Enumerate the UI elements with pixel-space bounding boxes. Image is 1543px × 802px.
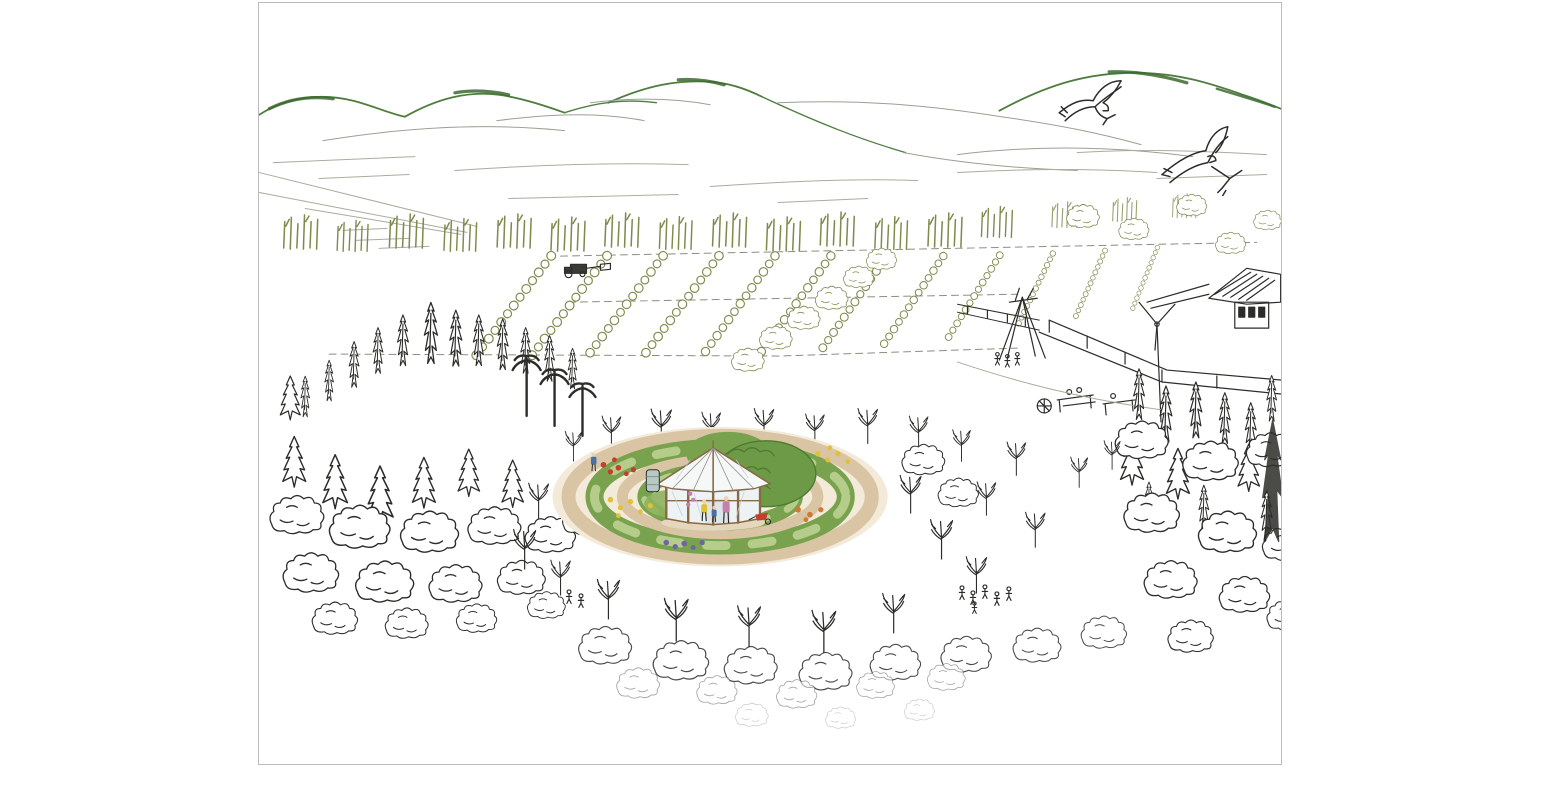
- landscape-sketch: [259, 3, 1281, 764]
- bottom-canopy: [579, 616, 1127, 690]
- drawing-frame: [258, 2, 1282, 765]
- page-background: [0, 0, 1543, 802]
- round-sculpture: [1037, 399, 1051, 413]
- bird-icon: [1162, 127, 1242, 196]
- woodland-right: [1115, 369, 1281, 652]
- poplar-windbreak: [284, 194, 1197, 252]
- field-scattered-trees: [264, 6, 1281, 371]
- mountain-ridge-shadows: [269, 72, 1274, 109]
- kite-birds: [1059, 81, 1242, 196]
- barn: [1147, 268, 1281, 328]
- farm-buildings: [958, 268, 1281, 422]
- tipi: [999, 288, 1045, 360]
- terrace-wall: [958, 304, 1281, 394]
- bird-icon: [1059, 81, 1121, 125]
- orchard-rows: [470, 245, 1160, 362]
- lake-and-plain-lines: [259, 150, 1266, 248]
- circular-garden: [553, 427, 888, 567]
- sketch-root: [259, 6, 1281, 728]
- water-barrel: [646, 470, 659, 492]
- woodland-left: [270, 302, 595, 638]
- picnic-tables: [1057, 388, 1135, 415]
- wind-turbine: [1139, 302, 1175, 422]
- field-fences: [329, 242, 1257, 356]
